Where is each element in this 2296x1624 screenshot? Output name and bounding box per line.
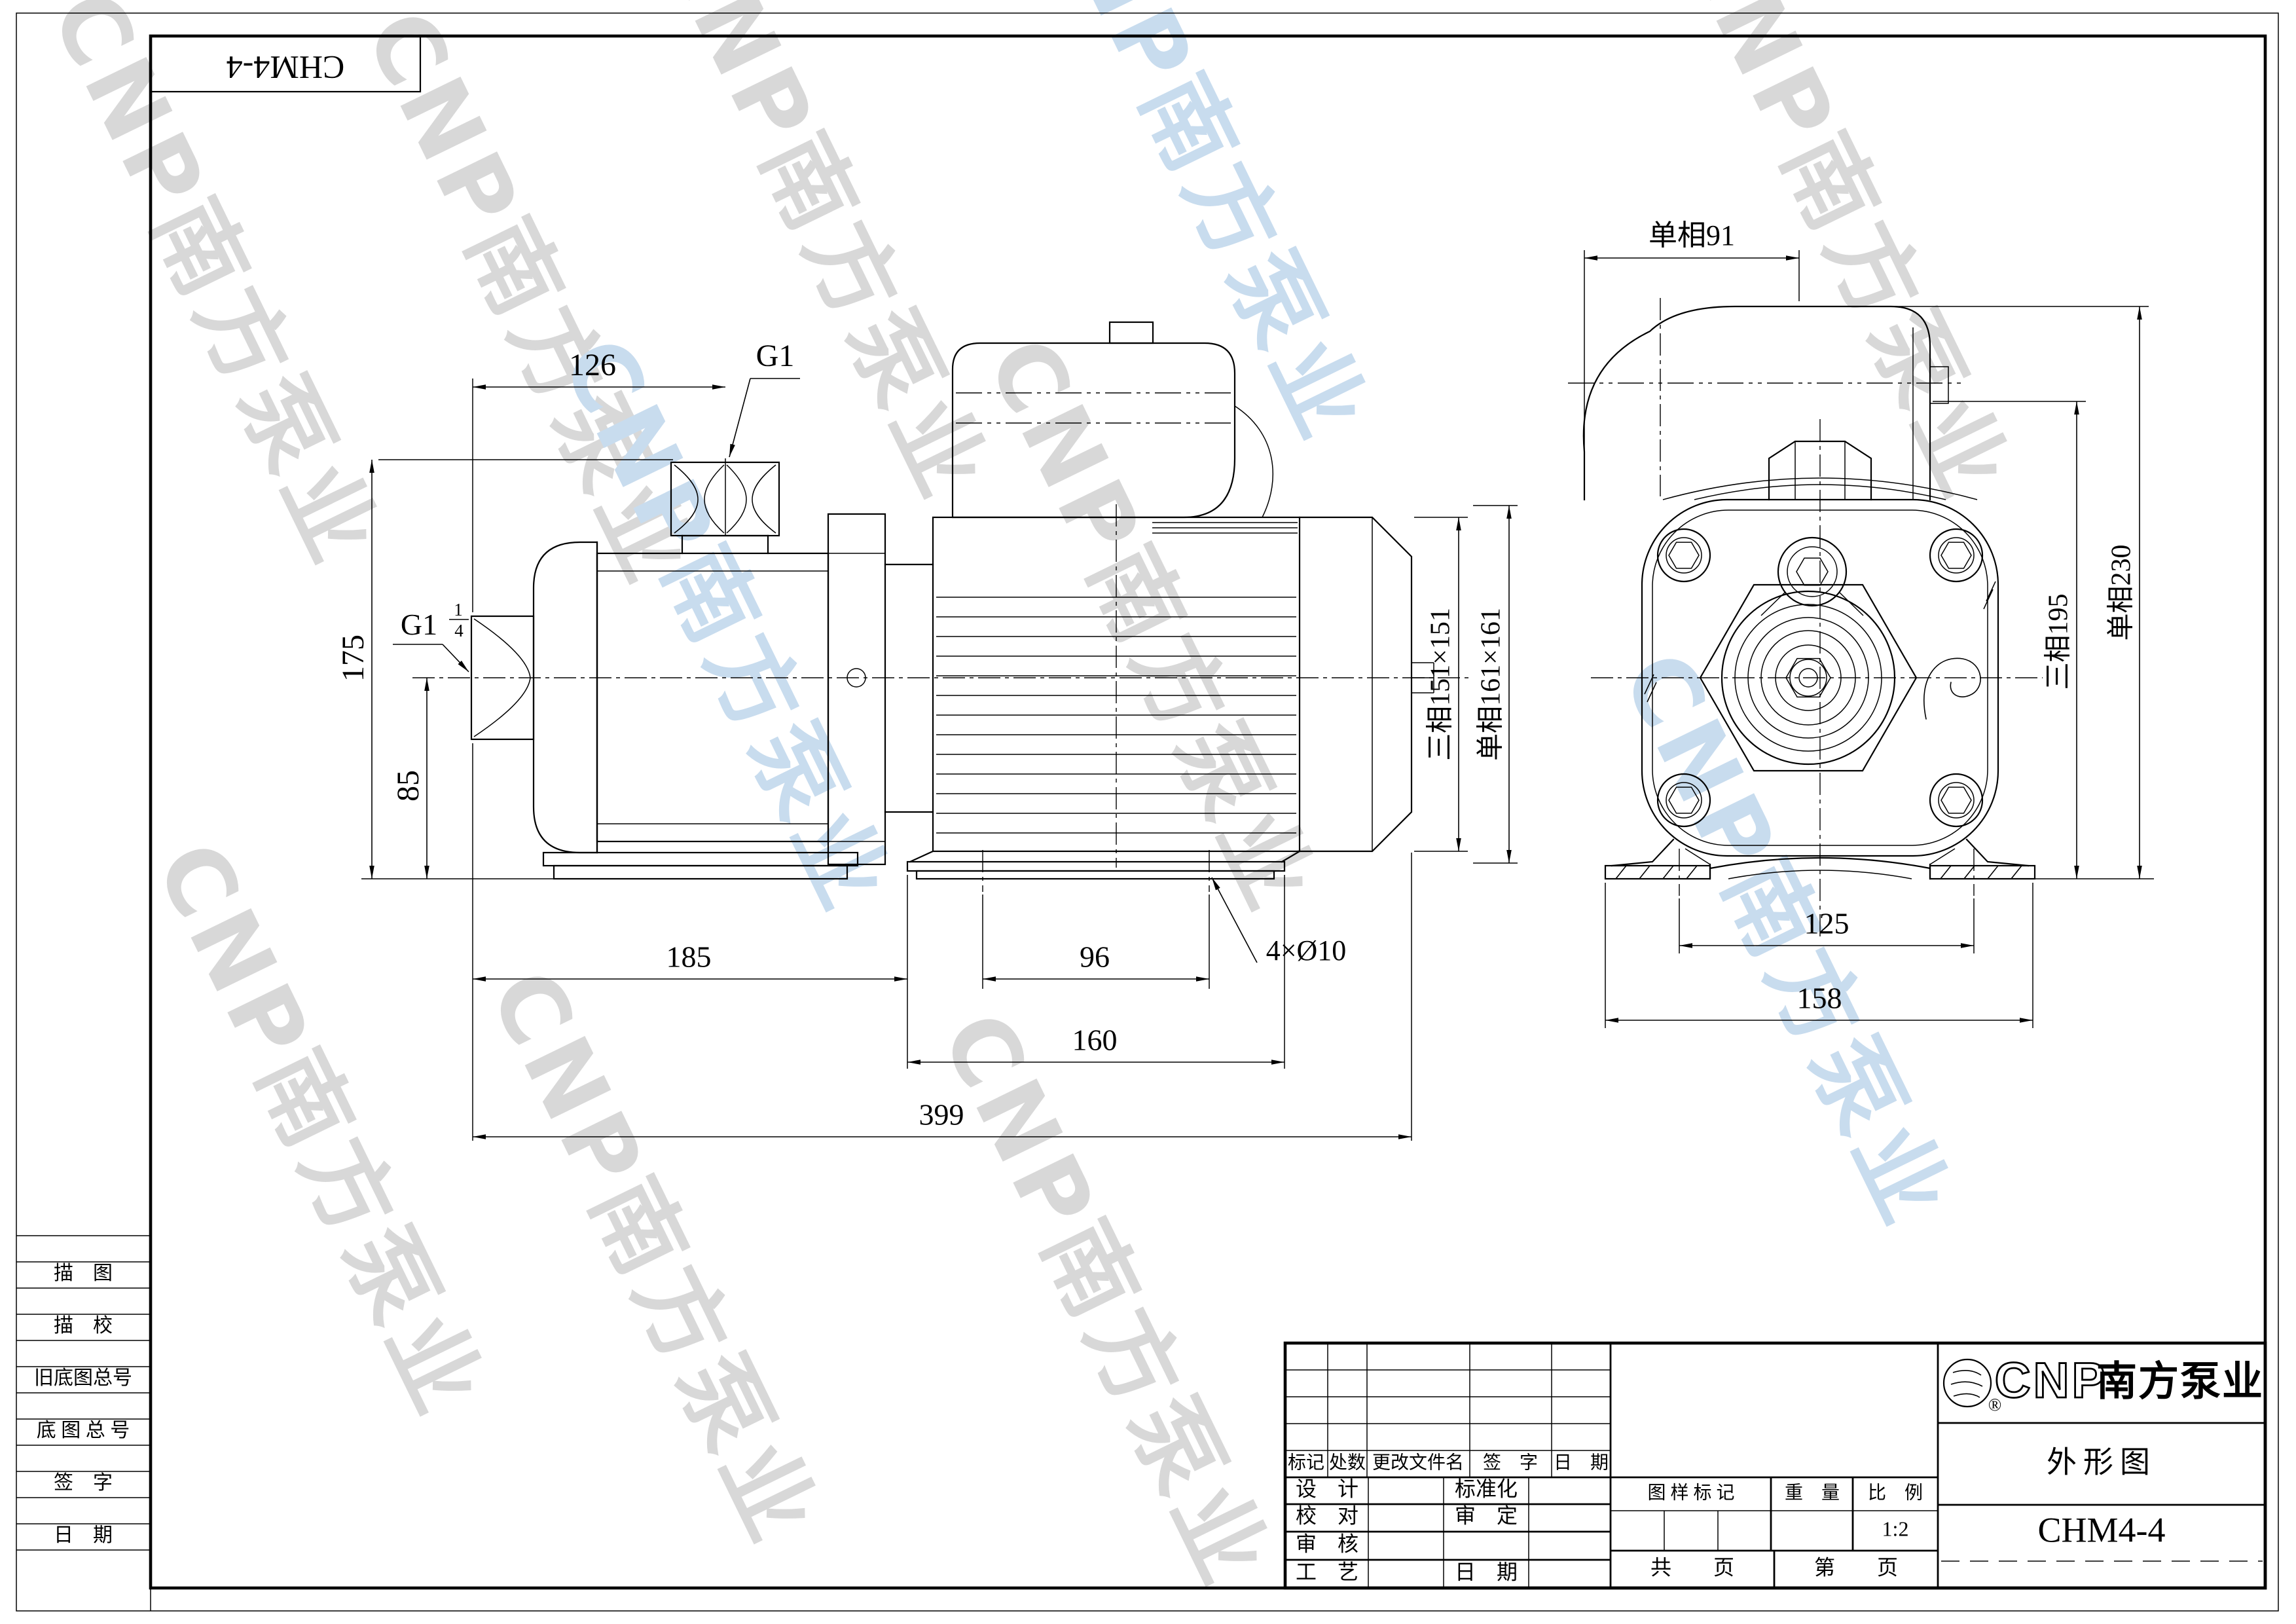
dim-195-label: 三相195 xyxy=(2044,593,2074,690)
signature-rows: 设 计 校 对 审 核 工 艺 标准化 审 定 日 期 xyxy=(1285,1477,1611,1588)
label-standardize: 标准化 xyxy=(1455,1477,1518,1500)
rev-col-mark: 标记 xyxy=(1288,1452,1324,1473)
label-scale: 比 例 xyxy=(1868,1482,1923,1503)
left-sidebar: 描 图 描 校 旧底图总号 底 图 总 号 签 字 日 期 xyxy=(16,1236,151,1611)
dim-g1q-label: G1 1 4 xyxy=(393,600,469,672)
stamp-section: 图 样 标 记 重 量 比 例 1:2 共 页 第 页 xyxy=(1611,1477,1938,1588)
label-design: 设 计 xyxy=(1296,1477,1358,1500)
sidebar-label-trace-check: 描 校 xyxy=(54,1315,113,1337)
label-page-no: 第 页 xyxy=(1814,1555,1898,1579)
model-reference-text: CHM4-4 xyxy=(227,50,345,86)
watermark-text: CNP南方泵业 xyxy=(30,0,399,583)
svg-text:4: 4 xyxy=(454,621,464,640)
dim-91-label: 单相91 xyxy=(1649,219,1735,251)
dim-holes-label: 4×Ø10 xyxy=(1266,934,1347,967)
doc-type-label: 外形图 xyxy=(2047,1446,2157,1479)
dim-158-label: 158 xyxy=(1797,982,1842,1015)
model-label: CHM4-4 xyxy=(2037,1510,2165,1549)
sidebar-label-signature: 签 字 xyxy=(54,1472,113,1494)
dim-175-label: 175 xyxy=(336,635,371,682)
label-process: 工 艺 xyxy=(1296,1560,1358,1583)
label-weight: 重 量 xyxy=(1785,1482,1840,1503)
watermark-text: CNP南方泵业 xyxy=(1601,637,1971,1244)
revision-table: 标记 处数 更改文件名 签 字 日 期 xyxy=(1285,1343,1611,1477)
label-drawing-mark: 图 样 标 记 xyxy=(1647,1482,1734,1503)
watermark-text: CNP南方泵业 xyxy=(1660,0,2030,517)
dim-85-label: 85 xyxy=(391,770,426,802)
dim-125-label: 125 xyxy=(1804,907,1850,940)
svg-text:G1: G1 xyxy=(401,608,437,641)
dim-185-label: 185 xyxy=(666,940,712,974)
brand-cnp-text: CNP xyxy=(1995,1353,2107,1409)
brand-section: ® CNP 南方泵业 外形图 CHM4-4 xyxy=(1938,1353,2265,1561)
watermark-text: CNP南方泵业 xyxy=(135,826,504,1434)
label-check: 校 对 xyxy=(1296,1504,1358,1527)
dim-square-3ph-label: 三相151×151 xyxy=(1426,608,1456,761)
label-approve: 审 定 xyxy=(1455,1504,1518,1527)
sidebar-label-old-master: 旧底图总号 xyxy=(34,1367,132,1389)
watermark-text: CNP南方泵业 xyxy=(920,997,1290,1604)
dim-230-label: 单相230 xyxy=(2107,544,2137,640)
cnp-logo: ® CNP 南方泵业 xyxy=(1944,1353,2264,1414)
dim-399-label: 399 xyxy=(919,1098,964,1132)
rev-col-file: 更改文件名 xyxy=(1372,1452,1464,1473)
rev-col-date: 日 期 xyxy=(1554,1452,1609,1473)
watermark-text: CNP南方泵业 xyxy=(469,954,838,1562)
sidebar-label-master-no: 底 图 总 号 xyxy=(37,1420,130,1441)
rev-col-sign: 签 字 xyxy=(1483,1452,1538,1473)
sidebar-label-trace: 描 图 xyxy=(54,1263,113,1284)
sidebar-label-date: 日 期 xyxy=(54,1524,113,1546)
dim-square-1ph-label: 单相161×161 xyxy=(1476,608,1506,761)
label-total-pages: 共 页 xyxy=(1650,1555,1734,1579)
cnp-cast-logo-mark xyxy=(1924,658,1980,719)
dim-96-label: 96 xyxy=(1080,940,1110,974)
dim-g1-label: G1 xyxy=(756,339,795,373)
pump-outline-drawing-sheet: CNP南方泵业 CNP南方泵业 CNP南方泵业 CNP南方泵业 CNP南方泵业 … xyxy=(0,0,2296,1624)
watermark-text: CNP南方泵业 xyxy=(541,322,910,930)
rev-col-count: 处数 xyxy=(1329,1452,1366,1473)
label-date: 日 期 xyxy=(1455,1560,1518,1583)
scale-value: 1:2 xyxy=(1882,1517,1909,1540)
title-block: 标记 处数 更改文件名 签 字 日 期 设 计 校 对 审 核 工 艺 标准化 … xyxy=(1285,1343,2265,1588)
brand-name-text: 南方泵业 xyxy=(2096,1359,2264,1404)
dim-126-label: 126 xyxy=(569,348,616,382)
label-review: 审 核 xyxy=(1296,1532,1358,1555)
svg-text:1: 1 xyxy=(454,600,463,619)
dim-160-label: 160 xyxy=(1072,1024,1118,1057)
